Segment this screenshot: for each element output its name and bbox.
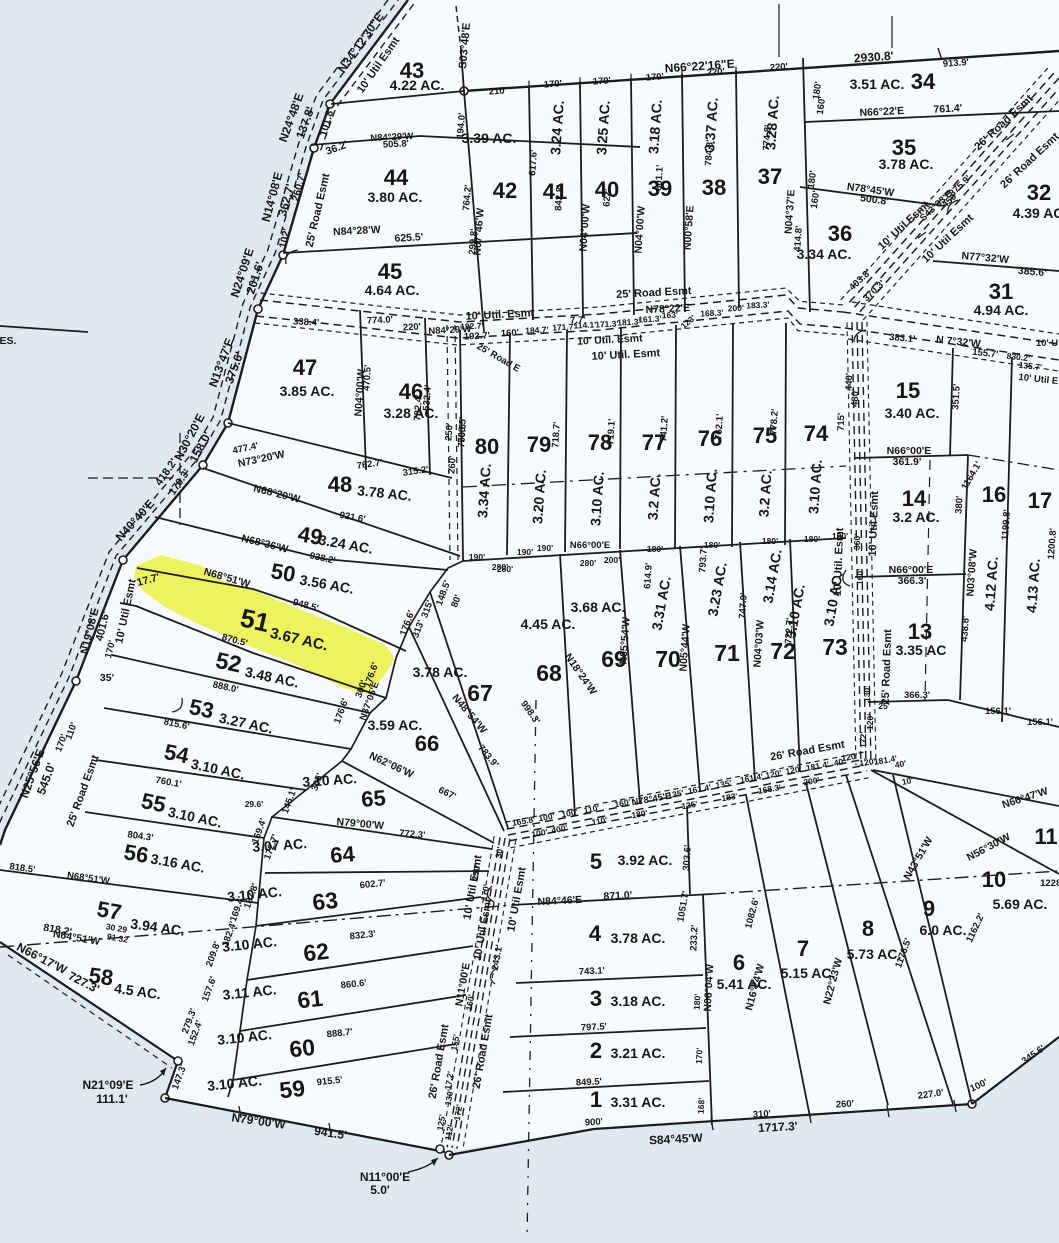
svg-text:161.3': 161.3'	[638, 313, 662, 324]
svg-text:6.0 AC.: 6.0 AC.	[920, 922, 967, 938]
svg-text:614.9': 614.9'	[642, 562, 655, 589]
svg-text:N06°04'W: N06°04'W	[702, 964, 716, 1012]
svg-text:438.8': 438.8'	[959, 615, 972, 642]
svg-text:N11°00'E: N11°00'E	[360, 1170, 410, 1184]
svg-text:50: 50	[269, 558, 297, 587]
svg-text:14: 14	[902, 486, 927, 511]
svg-text:747.9': 747.9'	[737, 592, 750, 619]
svg-text:80: 80	[475, 434, 499, 459]
svg-text:163': 163'	[661, 310, 678, 321]
svg-text:ES.: ES.	[0, 335, 17, 347]
svg-text:4.94 AC.: 4.94 AC.	[974, 302, 1029, 318]
svg-text:3.35 AC: 3.35 AC	[896, 642, 947, 658]
svg-text:29.6': 29.6'	[245, 799, 264, 809]
svg-text:13: 13	[908, 619, 932, 644]
svg-text:61: 61	[296, 985, 324, 1014]
svg-text:617.6': 617.6'	[527, 149, 540, 176]
svg-text:220': 220'	[769, 61, 788, 73]
svg-text:68: 68	[536, 660, 562, 686]
svg-text:60: 60	[288, 1034, 316, 1063]
svg-text:170': 170'	[645, 71, 664, 83]
svg-text:184.7': 184.7'	[525, 324, 549, 335]
svg-text:53: 53	[187, 694, 216, 724]
svg-text:715': 715'	[836, 413, 848, 431]
svg-text:3.92 AC.: 3.92 AC.	[618, 852, 673, 868]
svg-text:3.39 AC.: 3.39 AC.	[462, 130, 517, 146]
svg-text:3.78 AC.: 3.78 AC.	[413, 664, 468, 680]
svg-text:N84°28'W: N84°28'W	[333, 224, 381, 238]
svg-text:480': 480'	[850, 389, 862, 407]
svg-text:183.3': 183.3'	[746, 299, 770, 310]
svg-text:4.45 AC.: 4.45 AC.	[521, 616, 576, 632]
svg-text:192.7': 192.7'	[460, 320, 484, 331]
svg-text:47: 47	[293, 355, 317, 380]
svg-text:171.3': 171.3'	[595, 318, 619, 329]
svg-text:383.1': 383.1'	[889, 332, 916, 345]
svg-text:774.8': 774.8'	[761, 124, 774, 151]
svg-text:45: 45	[378, 259, 402, 284]
svg-text:385.6': 385.6'	[1017, 265, 1047, 279]
svg-text:1228.: 1228.	[1040, 878, 1059, 889]
svg-text:67: 67	[467, 680, 493, 706]
svg-text:361.9': 361.9'	[893, 456, 922, 468]
svg-text:260': 260'	[836, 1099, 855, 1111]
svg-text:200': 200'	[727, 303, 744, 314]
svg-text:N84°46'E: N84°46'E	[537, 894, 582, 908]
svg-text:3.2 AC.: 3.2 AC.	[644, 473, 663, 521]
svg-text:170': 170'	[543, 78, 562, 90]
svg-text:1: 1	[590, 1087, 602, 1112]
svg-text:250': 250'	[443, 422, 455, 441]
svg-text:1200.8': 1200.8'	[1046, 528, 1059, 560]
svg-text:37: 37	[758, 164, 782, 189]
svg-text:180': 180'	[804, 534, 820, 544]
svg-text:10' Util. Esmt: 10' Util. Esmt	[832, 527, 846, 596]
svg-text:5.69 AC.: 5.69 AC.	[993, 896, 1048, 912]
svg-text:4.64 AC.: 4.64 AC.	[365, 282, 420, 298]
svg-text:38: 38	[702, 175, 726, 200]
svg-text:10' U: 10' U	[1036, 338, 1058, 349]
svg-text:170': 170'	[592, 75, 611, 87]
svg-text:1717.3': 1717.3'	[758, 1119, 798, 1135]
svg-text:172': 172'	[858, 732, 869, 749]
svg-text:10' Util Esmt: 10' Util Esmt	[867, 491, 881, 557]
svg-text:114.1': 114.1'	[573, 319, 596, 330]
svg-text:470.5': 470.5'	[361, 364, 374, 391]
svg-text:160': 160'	[855, 569, 866, 586]
svg-text:8: 8	[862, 916, 874, 941]
svg-text:N66°22'E: N66°22'E	[859, 105, 904, 119]
svg-text:180': 180'	[692, 993, 703, 1010]
svg-text:42: 42	[493, 178, 517, 203]
svg-text:74: 74	[804, 421, 829, 446]
svg-text:625.5': 625.5'	[394, 231, 423, 244]
svg-text:3.59 AC.: 3.59 AC.	[368, 717, 423, 733]
svg-text:764.2': 764.2'	[461, 184, 474, 211]
svg-text:772.3': 772.3'	[399, 828, 426, 841]
svg-text:338.4': 338.4'	[293, 316, 320, 328]
svg-text:5.0': 5.0'	[370, 1183, 390, 1197]
svg-text:36: 36	[828, 221, 852, 246]
svg-text:10: 10	[982, 867, 1006, 892]
svg-text:3.85 AC.: 3.85 AC.	[280, 383, 335, 399]
svg-text:34: 34	[911, 69, 936, 94]
svg-text:3.40 AC.: 3.40 AC.	[885, 405, 940, 421]
svg-text:366.3': 366.3'	[898, 575, 927, 587]
svg-text:3.34 AC.: 3.34 AC.	[797, 246, 852, 262]
svg-text:310': 310'	[753, 1109, 772, 1121]
svg-text:360': 360'	[852, 534, 863, 551]
svg-text:180': 180'	[647, 544, 663, 554]
svg-text:622': 622'	[601, 188, 613, 207]
svg-text:849.5': 849.5'	[576, 1076, 603, 1088]
svg-text:N21°09'E: N21°09'E	[82, 1078, 133, 1092]
svg-text:414.8': 414.8'	[792, 225, 805, 252]
svg-text:210': 210'	[488, 85, 507, 97]
svg-text:801.1': 801.1'	[653, 164, 666, 191]
svg-text:260': 260'	[446, 455, 458, 474]
svg-text:62: 62	[302, 938, 330, 967]
svg-text:380': 380'	[953, 495, 965, 514]
svg-text:774.0': 774.0'	[367, 314, 394, 326]
svg-text:1199.8': 1199.8'	[1000, 509, 1013, 540]
svg-text:190': 190'	[537, 543, 553, 553]
svg-text:5.73 AC.: 5.73 AC.	[847, 946, 902, 962]
svg-text:71: 71	[714, 640, 740, 666]
svg-text:40': 40'	[833, 756, 846, 768]
svg-text:31: 31	[989, 279, 1013, 304]
svg-text:3.80 AC.: 3.80 AC.	[368, 189, 423, 205]
svg-text:3.51 AC.: 3.51 AC.	[850, 76, 905, 92]
svg-text:220': 220'	[403, 322, 422, 334]
svg-text:17: 17	[1028, 488, 1052, 513]
svg-text:25': 25'	[878, 701, 889, 711]
svg-text:63: 63	[311, 887, 339, 916]
svg-text:4.22 AC.: 4.22 AC.	[390, 77, 445, 93]
svg-text:190': 190'	[517, 547, 533, 557]
svg-text:32: 32	[1027, 180, 1051, 205]
svg-text:73: 73	[822, 634, 848, 660]
svg-text:842.8': 842.8'	[553, 184, 566, 211]
svg-text:168': 168'	[696, 1097, 707, 1114]
svg-text:3.18 AC.: 3.18 AC.	[611, 993, 666, 1009]
svg-text:S84°45'W: S84°45'W	[649, 1131, 704, 1148]
svg-text:35': 35'	[100, 672, 114, 684]
svg-text:303.6': 303.6'	[681, 844, 694, 871]
svg-text:190': 190'	[469, 552, 485, 562]
svg-text:30': 30'	[493, 846, 505, 859]
svg-text:5: 5	[590, 849, 602, 874]
svg-text:111.1': 111.1'	[96, 1092, 128, 1106]
svg-text:16: 16	[982, 482, 1006, 507]
svg-text:793.7': 793.7'	[697, 546, 710, 573]
svg-text:9: 9	[923, 896, 935, 921]
svg-text:900': 900'	[585, 1117, 604, 1129]
svg-text:180': 180'	[704, 540, 720, 550]
svg-text:280': 280'	[580, 558, 596, 568]
svg-text:743.1': 743.1'	[579, 965, 606, 977]
svg-text:10': 10'	[901, 775, 914, 787]
svg-text:2: 2	[590, 1038, 602, 1063]
svg-text:280': 280'	[497, 564, 513, 574]
svg-text:778.2': 778.2'	[768, 408, 781, 435]
svg-text:156.1': 156.1'	[985, 706, 1011, 717]
svg-text:2930.8': 2930.8'	[853, 49, 894, 66]
svg-text:56: 56	[122, 839, 150, 868]
svg-text:15: 15	[896, 378, 920, 403]
svg-text:797.5': 797.5'	[581, 1021, 608, 1033]
svg-text:3.31 AC.: 3.31 AC.	[611, 1094, 666, 1110]
svg-text:200': 200'	[604, 555, 620, 565]
svg-text:48: 48	[328, 472, 352, 497]
svg-text:3.2 AC.: 3.2 AC.	[755, 470, 774, 518]
svg-text:871.0': 871.0'	[603, 889, 632, 902]
svg-text:4.39 AC: 4.39 AC	[1013, 205, 1059, 221]
svg-text:233.2': 233.2'	[688, 925, 700, 952]
svg-text:40': 40'	[894, 758, 907, 770]
svg-text:4: 4	[589, 921, 602, 946]
svg-text:59: 59	[278, 1075, 306, 1104]
svg-text:6: 6	[733, 950, 745, 975]
svg-text:N66°00'E: N66°00'E	[570, 540, 610, 551]
svg-text:168.3': 168.3'	[700, 307, 724, 318]
svg-text:741.2': 741.2'	[658, 415, 671, 442]
svg-text:366.3': 366.3'	[904, 690, 930, 701]
svg-text:180': 180'	[762, 536, 778, 546]
svg-text:171.7': 171.7'	[552, 321, 576, 332]
svg-text:3: 3	[590, 986, 602, 1011]
svg-text:719.1': 719.1'	[605, 418, 618, 445]
svg-text:718.7': 718.7'	[550, 421, 563, 448]
svg-text:156.1': 156.1'	[1027, 717, 1053, 728]
svg-text:532.4': 532.4'	[421, 384, 434, 411]
svg-text:3.21 AC.: 3.21 AC.	[611, 1045, 666, 1061]
svg-text:440': 440'	[844, 373, 856, 391]
svg-text:192.7': 192.7'	[464, 330, 491, 342]
svg-text:7: 7	[797, 936, 809, 961]
svg-text:130': 130'	[862, 686, 873, 703]
svg-text:762.1': 762.1'	[713, 413, 726, 440]
svg-text:505.8': 505.8'	[383, 138, 410, 150]
svg-text:220': 220'	[706, 66, 725, 78]
svg-text:170': 170'	[694, 1047, 705, 1064]
svg-text:120': 120'	[865, 714, 876, 731]
svg-text:64: 64	[329, 841, 356, 868]
svg-text:194.0': 194.0'	[455, 112, 468, 139]
svg-text:722.7': 722.7'	[783, 617, 796, 644]
svg-text:79: 79	[527, 432, 551, 457]
svg-text:44: 44	[384, 165, 409, 190]
svg-text:3.2 AC.: 3.2 AC.	[893, 509, 940, 525]
svg-text:784.8': 784.8'	[703, 139, 716, 166]
svg-text:3.78 AC.: 3.78 AC.	[611, 930, 666, 946]
svg-text:3.68 AC.: 3.68 AC.	[571, 599, 626, 615]
svg-text:761.4': 761.4'	[933, 102, 962, 115]
svg-text:11: 11	[1034, 824, 1057, 849]
svg-text:52: 52	[213, 647, 243, 678]
svg-text:351.5': 351.5'	[950, 383, 963, 410]
svg-text:3.78 AC.: 3.78 AC.	[879, 156, 934, 172]
svg-text:66: 66	[415, 731, 439, 756]
svg-text:55: 55	[139, 788, 168, 818]
svg-text:65: 65	[360, 785, 386, 812]
svg-text:760.5': 760.5'	[456, 416, 469, 443]
svg-text:160': 160'	[501, 328, 520, 340]
svg-text:913.9': 913.9'	[942, 57, 969, 70]
